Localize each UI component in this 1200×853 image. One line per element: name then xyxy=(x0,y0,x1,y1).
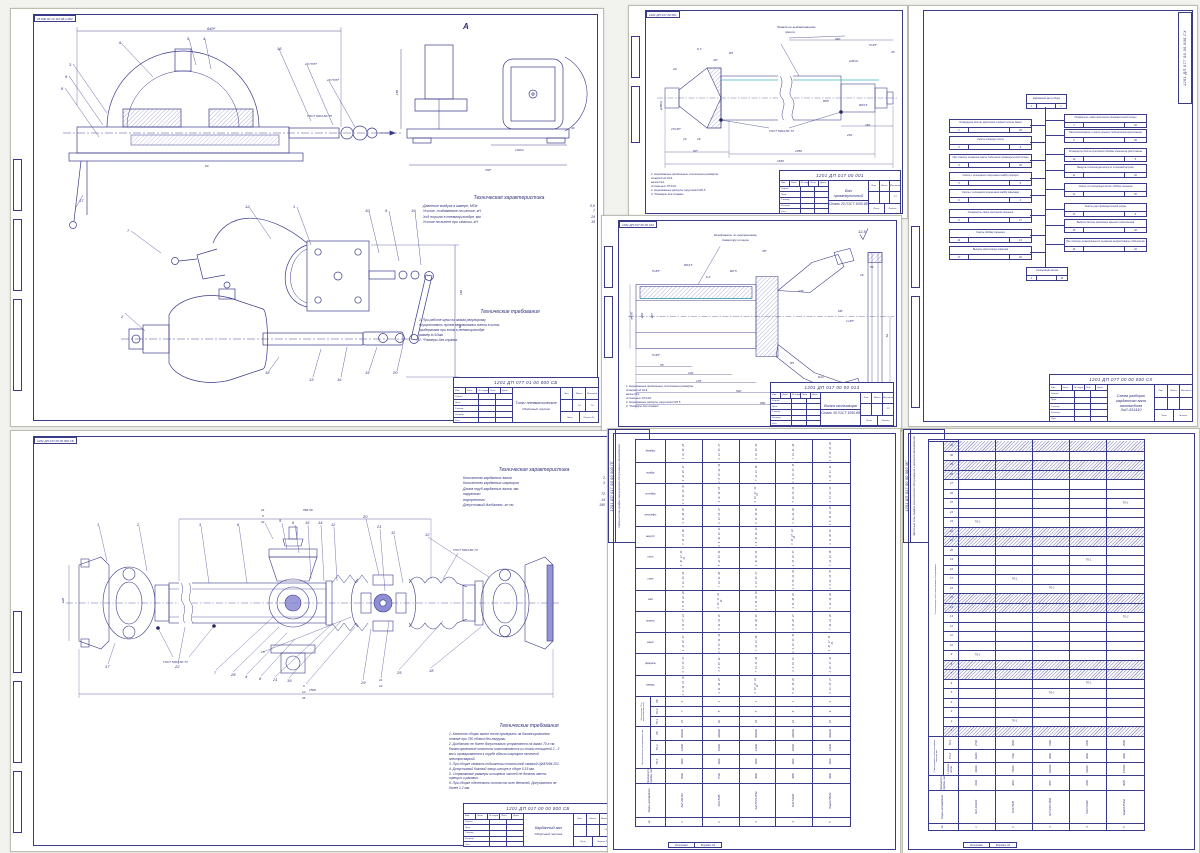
drawing-title: Вал промежуточный xyxy=(829,188,868,199)
tech-requirements-block: Технические требования 1. При работе щек… xyxy=(419,309,601,343)
month-label: апрель xyxy=(646,621,654,624)
sheet-monthly-schedule: 1201 ДП 017 00 00 000 МГМесячный план-гр… xyxy=(902,428,1200,853)
notes-block: 1. Неуказанные предельные отклонения раз… xyxy=(651,172,769,196)
month-label: июль xyxy=(647,557,653,560)
drawing-title: Месячный план-график технического обслуж… xyxy=(911,430,918,542)
flow-box: Отвернуть гайки крепления промежуточной … xyxy=(1064,114,1147,128)
maintenance-mark: ТО-1 xyxy=(974,521,980,524)
day-label: 22 xyxy=(950,531,953,534)
flowchart: Карданный вал в сборе11Скользящая вилка1… xyxy=(909,6,1197,426)
maintenance-mark: ТО-2 xyxy=(1123,616,1129,619)
spec-row: Усилие на винте при сжатии, кН15 xyxy=(423,220,595,225)
flow-box: Карданный вал в сборе11 xyxy=(1026,94,1067,109)
sheet-summary-schedule: 1201 ДП 017 00 00 000 ПГСводный план-гра… xyxy=(607,428,901,853)
maintenance-mark: ТО-1 xyxy=(974,654,980,657)
table-row: 1ЗиЛ-431410500030001200030000021712 9 16… xyxy=(666,440,703,826)
day-label: 23 xyxy=(950,521,953,524)
flow-box: Снять с шлицевого конца вала шайбу опорн… xyxy=(949,172,1032,186)
day-label: 8 xyxy=(950,664,951,667)
doc-number: 1201 ДП 017 00 00 013 xyxy=(771,383,893,393)
maintenance-mark: ТО-1 xyxy=(1048,588,1054,591)
title-block: 1201 ДП 017 00 001Изм.Лист№ докум.Подп.Д… xyxy=(779,170,901,214)
block-title: Технические требования xyxy=(449,723,609,729)
day-label: 24 xyxy=(950,512,953,515)
table-row: 3ЗиЛ-ММЗ-4502460030001200030000024813 10… xyxy=(740,440,777,826)
flow-box: Расшплинтовать и снять крышки подшипнико… xyxy=(1064,129,1147,143)
footer-strip: КопировалФормат А4 xyxy=(668,842,722,848)
block-title: Техническая характеристика xyxy=(423,195,595,201)
day-label: 12 xyxy=(950,626,953,629)
day-label: 31 xyxy=(950,445,953,448)
doc-number: 1201 ДП 017 00 00 000 ПГ xyxy=(609,430,616,542)
sheet-driveshaft-assembly: 1201 ДП 017 00 00 000 СБ xyxy=(10,430,620,852)
day-label: 6 xyxy=(950,683,951,686)
text-line: 3. *Размеры для справок. xyxy=(626,404,752,408)
day-label: 18 xyxy=(950,569,953,572)
day-label: 11 xyxy=(950,635,953,638)
drawing-board: 25 000 00 10 110 08 1.002 xyxy=(0,0,1200,853)
table-row: 3ЗиЛ-ММЗ-4502386710000096001900ТО-1ТО-1 xyxy=(1033,440,1070,830)
month-label: август xyxy=(646,536,655,539)
drawing-title: Сводный план-график технического обслужи… xyxy=(616,430,623,542)
month-label: октябрь xyxy=(645,493,655,496)
text-line: 3. *Размеры для справок. xyxy=(651,192,769,196)
doc-number: 1201 ДП 017 00 00 000 МГ xyxy=(904,430,911,542)
sheet-intermediate-shaft: 1201 ДП 017 00 001 xyxy=(628,5,908,219)
flow-box: Отвернуть болты крепления опорной плиты … xyxy=(949,119,1032,133)
day-label: 20 xyxy=(950,550,953,553)
day-label: 1 xyxy=(950,730,951,733)
day-label: 3 xyxy=(950,711,951,714)
footer-strip: КопировалФормат А4 xyxy=(963,842,1017,848)
notes-block: 1. Неуказанные предельные отклонения раз… xyxy=(626,384,752,408)
flow-box: Отвернуть болты крепления обоймы сальник… xyxy=(1064,148,1147,162)
flow-box: Снять опорную плиту36 xyxy=(949,136,1032,150)
tech-characteristics-block: Техническая характеристика Количество ка… xyxy=(463,467,605,509)
tech-characteristics-block: Техническая характеристика Давление возд… xyxy=(423,195,595,226)
day-label: 9 xyxy=(950,654,951,657)
day-label: 26 xyxy=(950,493,953,496)
flow-box: При помощи универсального съемника выпре… xyxy=(1064,238,1147,252)
flow-box: Отвернуть гайку крепления сальника817 xyxy=(949,209,1032,223)
schedule-table-wrap: №Марка автомобиляСреднесут. пробег, кмПе… xyxy=(635,439,849,825)
flow-box: Вынуть скользящую вилку из шлицевой втул… xyxy=(1064,164,1147,178)
month-label: декабрь xyxy=(646,450,656,453)
maintenance-mark: ТО-1 xyxy=(1048,692,1054,695)
flow-box: Снять узел промежуточной опоры136 xyxy=(1064,203,1147,217)
flow-box: При помощи съемника снять подшипник пром… xyxy=(949,154,1032,168)
month-label: ноябрь xyxy=(646,472,654,475)
day-label: 29 xyxy=(950,464,953,467)
day-label: 16 xyxy=(950,588,953,591)
maintenance-mark: ТО-1 xyxy=(1011,578,1017,581)
doc-number: 1201 ДП 077 01 00 000 СБ xyxy=(454,378,598,388)
maintenance-mark: ТО-1 xyxy=(1085,559,1091,562)
day-label: 17 xyxy=(950,578,953,581)
maintenance-mark: ТО-1 xyxy=(1123,502,1129,505)
title-block: 1201 ДП 077 00 00 000 СХИзм.Лист№ докум.… xyxy=(1049,374,1193,422)
day-label: 28 xyxy=(950,474,953,477)
day-label: 5 xyxy=(950,692,951,695)
maintenance-mark: ТО-1 xyxy=(1085,683,1091,686)
flow-box: Снять с шлицевого конца вала шайбу замко… xyxy=(949,189,1032,203)
table-row: 5КамАЗ-55102362517000044002590ТО-2ТО-1 xyxy=(1107,440,1144,830)
flow-box: Вынуть крестовину шарнира1720 xyxy=(949,246,1032,260)
flow-box: Снять обойму сальника1414 xyxy=(949,229,1032,243)
sheet-disassembly-scheme: 1201 ДП 077 00 00 000 СХ Карданный вал в… xyxy=(908,5,1198,427)
table-row: 4МАЗ-54322495040001600032000019615 12 19… xyxy=(776,440,813,826)
month-label: май xyxy=(648,599,653,602)
month-label: июнь xyxy=(647,578,653,581)
day-label: 2 xyxy=(950,721,951,724)
day-label: 25 xyxy=(950,502,953,505)
table-row: 2МАЗ-533542107000071002500ТО-1ТО-1 xyxy=(996,440,1033,830)
text-line: более 1,2 мм. xyxy=(449,786,609,791)
table-row: 1ЗиЛ-431410413040000112002730ТО-1ТО-1 xyxy=(959,440,996,830)
title-block: 1201 ДП 077 01 00 000 СБИзм.Лист№ докум.… xyxy=(453,377,599,423)
text-line: 2. *Размеры для справок xyxy=(419,338,601,343)
day-label: 4 xyxy=(950,702,951,705)
day-label: 27 xyxy=(950,483,953,486)
table-row: 2МАЗ-5335570040001600032000020514 11 18 … xyxy=(703,440,740,826)
month-label: февраль xyxy=(645,663,656,666)
day-label: 21 xyxy=(950,540,953,543)
drawing-title: Схема разборки карданного вала автомобил… xyxy=(1108,393,1154,413)
block-title: Техническая характеристика xyxy=(463,467,605,473)
doc-number: 1201 ДП 077 00 00 000 СХ xyxy=(1050,375,1192,385)
tech-requirements-block: Технические требования 1. Качество сборк… xyxy=(449,723,609,791)
sheet-vise-assembly: 25 000 00 10 110 08 1.002 xyxy=(10,8,604,427)
day-label: 30 xyxy=(950,455,953,458)
day-label: 19 xyxy=(950,559,953,562)
table-row: 5КамАЗ-55102490040001200030000018616 13 … xyxy=(813,440,850,826)
month-label: январь xyxy=(646,684,654,687)
material: Сталь 35 ГОСТ 1050-88 xyxy=(821,409,860,416)
day-label: 7 xyxy=(950,673,951,676)
material: Сталь 20 ГОСТ 1050-88 xyxy=(829,200,868,207)
flow-box: Выбить болты крепления крышек подшипнико… xyxy=(1064,219,1147,233)
monthly-schedule-table: №Марка автомобиляСреднесут. пробег, кмПл… xyxy=(928,439,1145,831)
day-label: 14 xyxy=(950,607,953,610)
spec-row: Допустимый дисбаланс, гс·см190 xyxy=(463,503,605,508)
title-block: 1201 ДП 017 00 00 000 СБИзм.Лист№ докум.… xyxy=(463,803,613,847)
flow-box: Снять со скользящей вилки обойму сальник… xyxy=(1064,183,1147,197)
doc-number: 1201 ДП 017 00 00 000 СБ xyxy=(464,804,612,814)
month-label: март xyxy=(647,642,654,645)
day-label: 13 xyxy=(950,616,953,619)
day-label: 10 xyxy=(950,645,953,648)
block-title: Технические требования xyxy=(419,309,601,315)
schedule-table-wrap: №Марка автомобиляСреднесут. пробег, кмПл… xyxy=(928,439,1143,829)
table-row: 4МАЗ-5432241086000096002430ТО-1ТО-1 xyxy=(1070,440,1107,830)
doc-number: 1201 ДП 017 00 001 xyxy=(780,171,900,181)
maintenance-mark: ТО-1 xyxy=(1011,721,1017,724)
month-label: сентябрь xyxy=(645,514,657,517)
day-label: 15 xyxy=(950,597,953,600)
sheet-sliding-fork: 1201 ДП 017 00 00 013 xyxy=(601,215,902,432)
flow-box: Скользящая вилка120 xyxy=(1026,267,1068,281)
summary-schedule-table: №Марка автомобиляСреднесут. пробег, кмПе… xyxy=(635,439,851,827)
title-block: 1201 ДП 017 00 00 013Изм.Лист№ докум.Под… xyxy=(770,382,894,426)
